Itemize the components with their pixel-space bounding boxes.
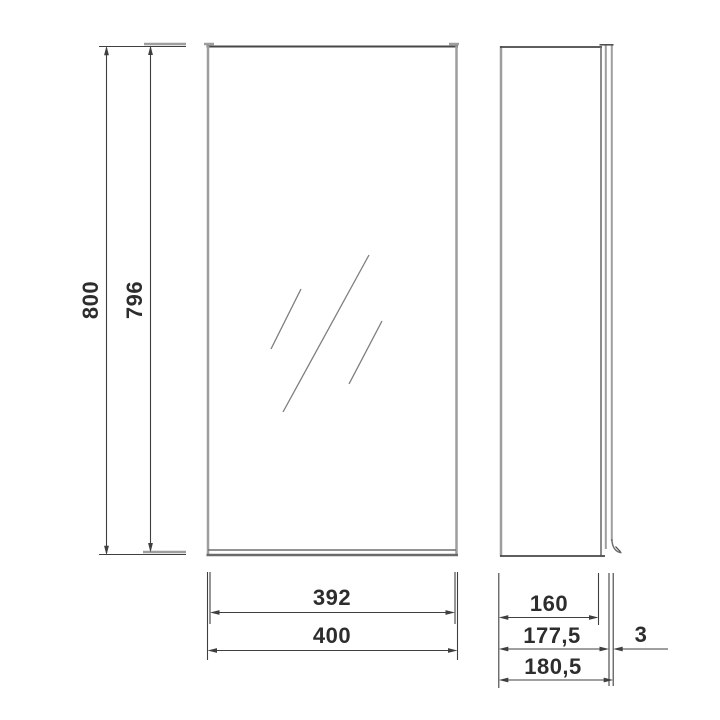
arrow-800-down xyxy=(104,546,109,556)
arrow-3-left xyxy=(613,647,623,652)
arrow-177-left xyxy=(499,647,509,652)
technical-drawing-mirror-cabinet: 800 796 392 400 160 177,5 3 180,5 xyxy=(0,0,720,720)
arrow-392-right xyxy=(446,610,456,615)
side-view-outline xyxy=(500,45,622,557)
arrow-392-left xyxy=(210,610,220,615)
drawing-canvas xyxy=(0,0,720,720)
arrow-160-right xyxy=(589,615,599,620)
dim-label-total-height: 800 xyxy=(80,281,102,319)
arrow-800-up xyxy=(104,46,109,56)
arrow-400-left xyxy=(208,648,218,653)
mirror-hatch-long xyxy=(283,255,369,412)
arrow-177-right xyxy=(600,647,610,652)
front-view-outline xyxy=(204,44,459,555)
mirror-hatch-short-left xyxy=(271,289,301,349)
dim-label-mirror-width: 392 xyxy=(313,587,351,609)
mirror-hatch-lines xyxy=(271,255,382,412)
dim-label-glass-thickness: 3 xyxy=(635,624,648,646)
arrow-400-right xyxy=(448,648,458,653)
dim-label-depth-with-door: 177,5 xyxy=(523,625,581,647)
dim-label-body-depth: 160 xyxy=(530,593,568,615)
arrow-180-left xyxy=(499,678,509,683)
dim-label-inner-height: 796 xyxy=(124,281,146,319)
arrow-160-left xyxy=(499,615,509,620)
dim-label-total-width: 400 xyxy=(313,625,351,647)
mirror-hatch-short-right xyxy=(349,321,382,384)
dim-label-total-depth: 180,5 xyxy=(524,656,582,678)
